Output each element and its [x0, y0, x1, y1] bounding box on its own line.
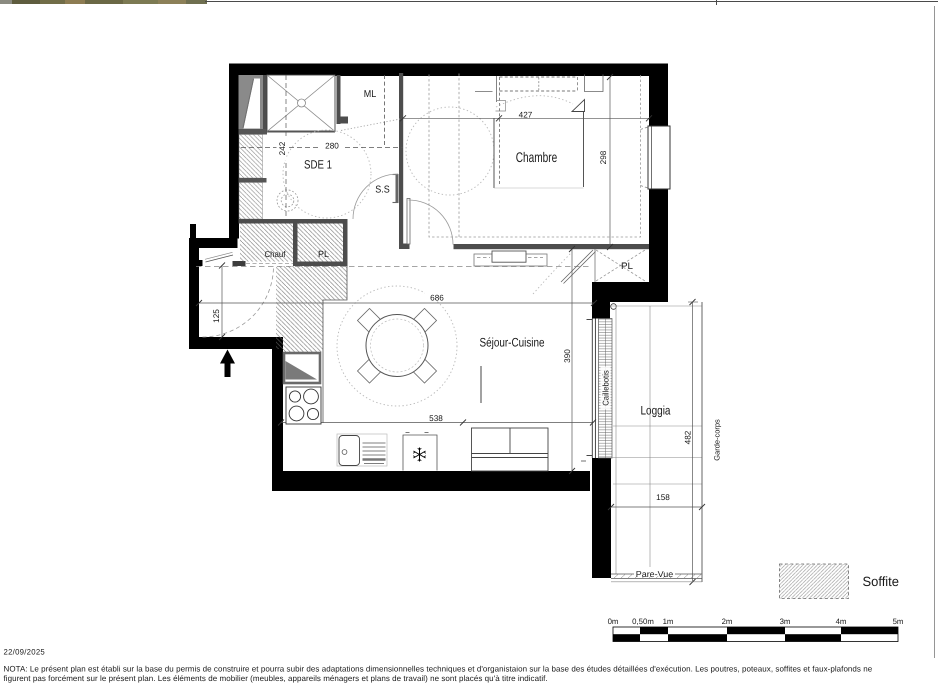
svg-text:158: 158	[656, 493, 670, 502]
svg-text:NOTA: Le présent plan est étab: NOTA: Le présent plan est établi sur la …	[4, 665, 873, 674]
svg-text:figurent pas forcément sur le: figurent pas forcément sur le présent pl…	[4, 674, 548, 683]
svg-text:2m: 2m	[722, 617, 733, 626]
svg-text:ML: ML	[364, 89, 377, 100]
svg-text:125: 125	[212, 309, 221, 323]
svg-text:Soffite: Soffite	[863, 574, 900, 589]
svg-text:280: 280	[325, 141, 339, 150]
svg-text:Caillebotis: Caillebotis	[601, 370, 611, 406]
svg-text:242: 242	[278, 141, 287, 155]
svg-text:Pare-Vue: Pare-Vue	[636, 569, 674, 579]
svg-text:538: 538	[429, 414, 443, 423]
svg-text:3m: 3m	[780, 617, 791, 626]
svg-text:Chauf: Chauf	[265, 249, 287, 259]
svg-text:PL: PL	[621, 260, 633, 271]
svg-text:Chambre: Chambre	[516, 149, 558, 165]
svg-text:4m: 4m	[836, 617, 847, 626]
svg-text:Garde-corps: Garde-corps	[713, 419, 722, 461]
svg-text:0,50m: 0,50m	[632, 617, 654, 626]
svg-text:427: 427	[519, 110, 533, 119]
svg-text:SDE 1: SDE 1	[304, 157, 332, 171]
svg-text:482: 482	[683, 430, 692, 444]
svg-text:Séjour-Cuisine: Séjour-Cuisine	[480, 336, 545, 350]
svg-text:S.S: S.S	[375, 185, 390, 196]
svg-text:22/09/2025: 22/09/2025	[4, 648, 46, 657]
svg-text:1m: 1m	[663, 617, 674, 626]
svg-text:686: 686	[430, 294, 444, 303]
svg-text:Loggia: Loggia	[641, 404, 671, 418]
svg-text:PL: PL	[318, 249, 329, 259]
svg-text:298: 298	[599, 150, 608, 164]
svg-text:5m: 5m	[893, 617, 904, 626]
svg-text:390: 390	[563, 349, 572, 363]
svg-text:0m: 0m	[608, 617, 619, 626]
